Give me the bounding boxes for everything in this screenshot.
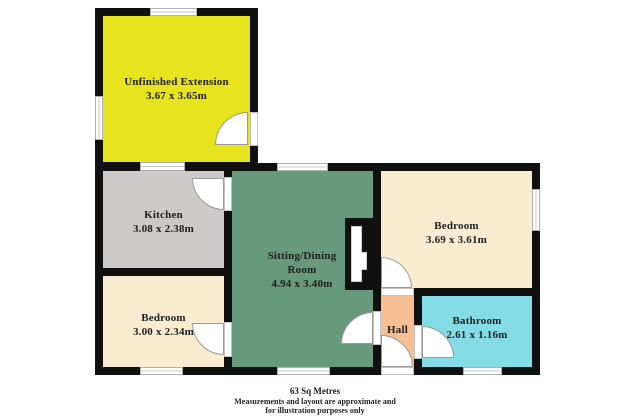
room-name: Bathroom — [422, 314, 532, 328]
window-extension-left — [95, 96, 103, 140]
window-bedroom-small-bottom — [140, 367, 183, 375]
room-name: Bedroom — [381, 219, 532, 233]
room-name: Hall — [376, 323, 419, 337]
total-area: 63 Sq Metres — [0, 386, 630, 397]
disclaimer-line-2: for illustration purposes only — [0, 406, 630, 415]
room-dims: 3.08 x 2.38m — [103, 222, 224, 236]
plan-footer: 63 Sq Metres Measurements and layout are… — [0, 386, 630, 415]
window-bathroom-bottom — [463, 367, 502, 375]
window-bedroom-large-right — [532, 189, 540, 231]
window-sitting-bottom — [277, 367, 330, 375]
label-bedroom-large: Bedroom 3.69 x 3.61m — [381, 219, 532, 247]
room-name: Unfinished Extension — [103, 75, 250, 89]
door-opening-kitchen — [224, 177, 232, 211]
fireplace-recess-step — [361, 252, 367, 270]
label-unfinished-extension: Unfinished Extension 3.67 x 3.65m — [103, 75, 250, 103]
room-dims: 3.69 x 3.61m — [381, 233, 532, 247]
room-name: Bedroom — [103, 311, 224, 325]
window-sitting-top — [277, 163, 328, 171]
room-dims: 3.67 x 3.65m — [103, 89, 250, 103]
door-opening-bedroom-large — [381, 288, 414, 296]
label-kitchen: Kitchen 3.08 x 2.38m — [103, 208, 224, 236]
room-name: Kitchen — [103, 208, 224, 222]
room-name: Sitting/Dining Room — [252, 249, 352, 277]
window-extension-kitchen — [140, 162, 185, 171]
label-bathroom: Bathroom 2.61 x 1.16m — [422, 314, 532, 342]
room-dims: 3.00 x 2.34m — [103, 325, 224, 339]
disclaimer-line-1: Measurements and layout are approximate … — [0, 397, 630, 406]
door-opening-front — [381, 367, 414, 375]
door-opening-extension — [250, 112, 258, 146]
floor-plan: Unfinished Extension 3.67 x 3.65m Kitche… — [0, 0, 630, 420]
door-opening-bedroom-small — [224, 322, 232, 357]
label-sitting-dining: Sitting/Dining Room 4.94 x 3.40m — [252, 249, 352, 291]
window-extension-top — [150, 8, 197, 16]
room-dims: 2.61 x 1.16m — [422, 328, 532, 342]
label-bedroom-small: Bedroom 3.00 x 2.34m — [103, 311, 224, 339]
label-hall: Hall — [376, 323, 419, 337]
room-dims: 4.94 x 3.40m — [252, 277, 352, 291]
